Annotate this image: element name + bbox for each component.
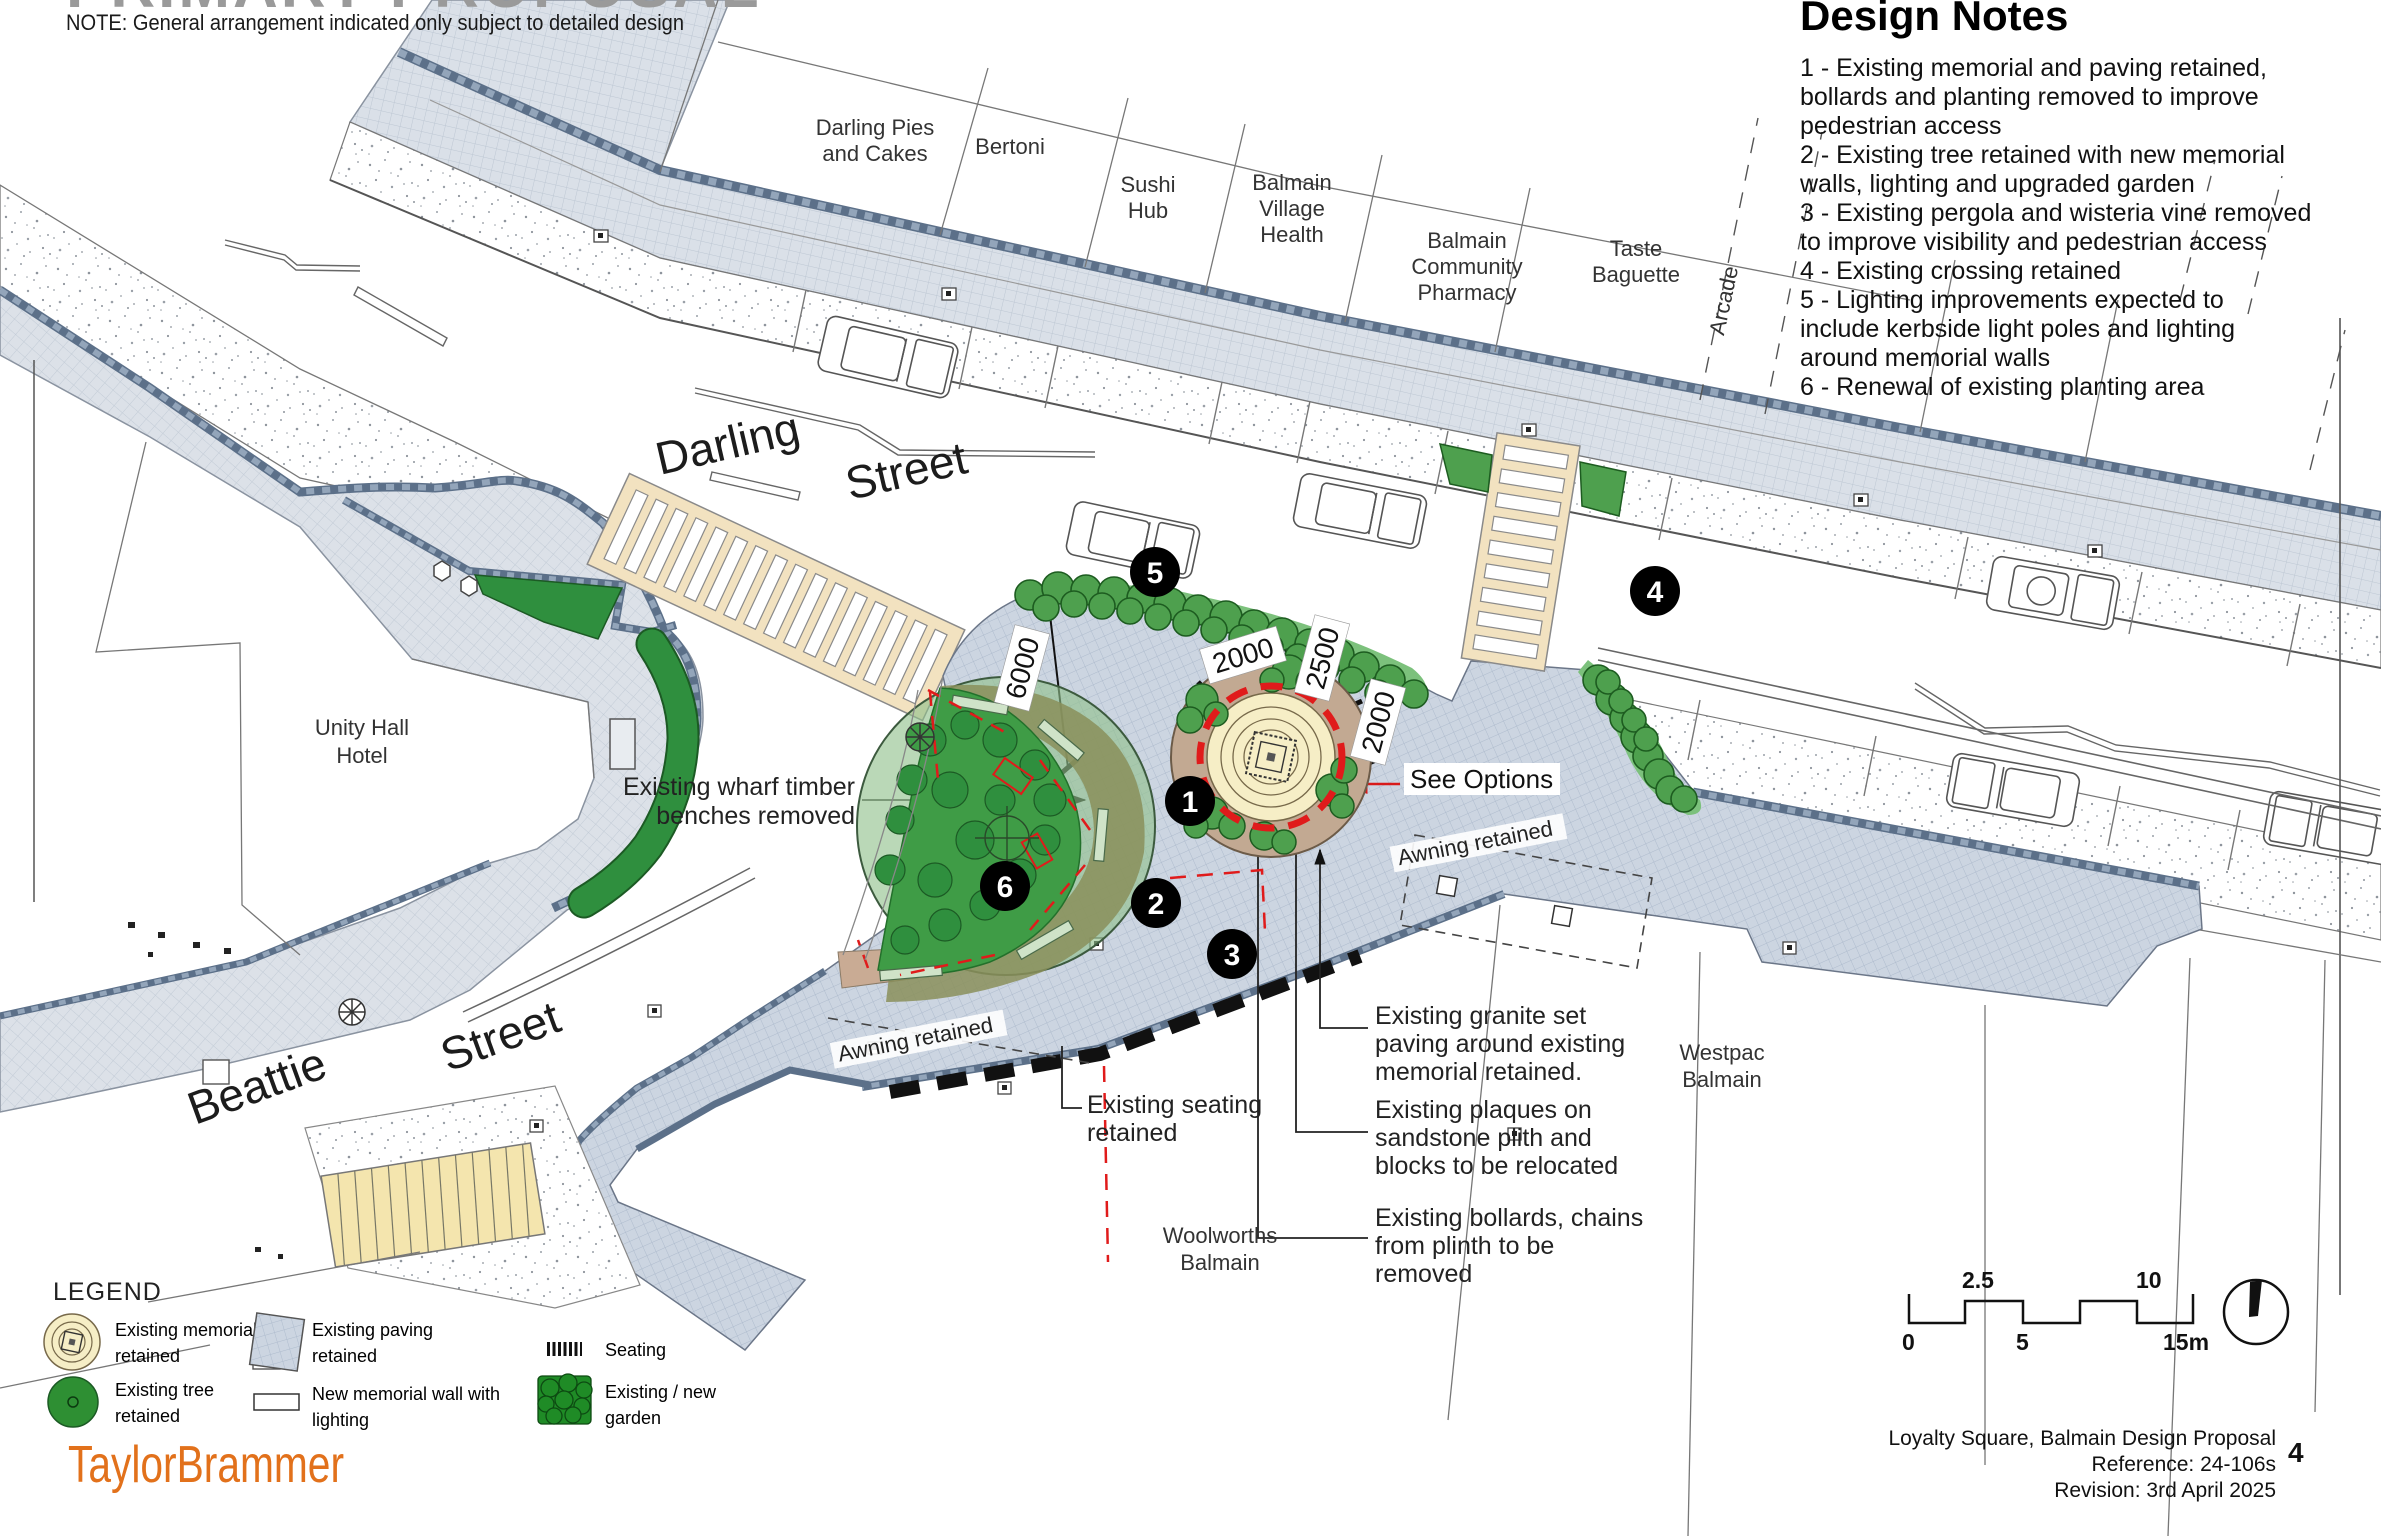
svg-text:LEGEND: LEGEND bbox=[53, 1278, 162, 1306]
svg-text:Sushi: Sushi bbox=[1120, 172, 1175, 197]
svg-text:Seating: Seating bbox=[605, 1340, 666, 1360]
svg-text:Existing paving: Existing paving bbox=[312, 1320, 433, 1340]
svg-text:walls, lighting and upgraded g: walls, lighting and upgraded garden bbox=[1799, 170, 2195, 198]
svg-text:5: 5 bbox=[1147, 557, 1164, 590]
svg-text:See Options: See Options bbox=[1410, 764, 1553, 794]
svg-text:Balmain: Balmain bbox=[1682, 1067, 1761, 1092]
svg-text:2: 2 bbox=[1148, 888, 1165, 921]
svg-text:0: 0 bbox=[1902, 1329, 1915, 1355]
svg-text:retained: retained bbox=[115, 1346, 180, 1366]
svg-text:4: 4 bbox=[1647, 576, 1664, 609]
svg-text:retained: retained bbox=[1087, 1119, 1177, 1147]
svg-text:4 - Existing crossing retained: 4 - Existing crossing retained bbox=[1800, 257, 2121, 285]
svg-text:6 - Renewal of existing planti: 6 - Renewal of existing planting area bbox=[1800, 373, 2205, 401]
svg-text:retained: retained bbox=[312, 1346, 377, 1366]
svg-text:5 - Lighting improvements expe: 5 - Lighting improvements expected to bbox=[1800, 286, 2224, 314]
svg-text:TaylorBrammer: TaylorBrammer bbox=[68, 1436, 344, 1494]
svg-text:include kerbside light poles a: include kerbside light poles and lightin… bbox=[1800, 315, 2235, 343]
svg-text:removed: removed bbox=[1375, 1260, 1472, 1288]
svg-text:Existing memorial: Existing memorial bbox=[115, 1320, 257, 1340]
svg-text:around memorial walls: around memorial walls bbox=[1800, 344, 2050, 372]
svg-text:4: 4 bbox=[2288, 1437, 2304, 1468]
svg-text:1 - Existing memorial and pavi: 1 - Existing memorial and paving retaine… bbox=[1800, 54, 2267, 82]
svg-text:Existing tree: Existing tree bbox=[115, 1380, 214, 1400]
svg-text:Village: Village bbox=[1259, 196, 1325, 221]
svg-text:Existing bollards, chains: Existing bollards, chains bbox=[1375, 1204, 1643, 1232]
svg-text:5: 5 bbox=[2016, 1329, 2029, 1355]
svg-text:Revision: 3rd April 2025: Revision: 3rd April 2025 bbox=[2054, 1479, 2276, 1502]
svg-text:Loyalty Square, Balmain Design: Loyalty Square, Balmain Design Proposal bbox=[1888, 1427, 2276, 1450]
svg-text:Taste: Taste bbox=[1610, 236, 1663, 261]
svg-text:garden: garden bbox=[605, 1408, 661, 1428]
svg-text:Balmain: Balmain bbox=[1180, 1250, 1259, 1275]
svg-text:Existing granite set: Existing granite set bbox=[1375, 1002, 1586, 1030]
svg-text:retained: retained bbox=[115, 1406, 180, 1426]
svg-text:3: 3 bbox=[1224, 939, 1241, 972]
svg-text:pedestrian access: pedestrian access bbox=[1800, 112, 2002, 140]
svg-text:1: 1 bbox=[1182, 786, 1199, 819]
svg-text:to improve visibility and pede: to improve visibility and pedestrian acc… bbox=[1800, 228, 2267, 256]
svg-text:Balmain: Balmain bbox=[1252, 170, 1331, 195]
svg-text:New memorial wall with: New memorial wall with bbox=[312, 1384, 500, 1404]
svg-text:2 - Existing tree retained wit: 2 - Existing tree retained with new memo… bbox=[1800, 141, 2285, 169]
svg-text:Hotel: Hotel bbox=[336, 743, 387, 768]
svg-text:paving around existing: paving around existing bbox=[1375, 1030, 1625, 1058]
svg-text:sandstone plith and: sandstone plith and bbox=[1375, 1124, 1592, 1152]
svg-text:6: 6 bbox=[997, 871, 1014, 904]
svg-text:bollards and planting removed: bollards and planting removed to improve bbox=[1800, 83, 2259, 111]
svg-text:Darling Pies: Darling Pies bbox=[816, 115, 935, 140]
svg-text:blocks to be relocated: blocks to be relocated bbox=[1375, 1152, 1618, 1180]
svg-text:Community: Community bbox=[1411, 254, 1522, 279]
svg-text:Existing seating: Existing seating bbox=[1087, 1091, 1262, 1119]
svg-text:lighting: lighting bbox=[312, 1410, 369, 1430]
svg-text:memorial retained.: memorial retained. bbox=[1375, 1058, 1582, 1086]
svg-text:3 - Existing pergola and wiste: 3 - Existing pergola and wisteria vine r… bbox=[1800, 199, 2311, 227]
svg-text:Existing / new: Existing / new bbox=[605, 1382, 717, 1402]
svg-text:Balmain: Balmain bbox=[1427, 228, 1506, 253]
svg-text:Bertoni: Bertoni bbox=[975, 134, 1045, 159]
svg-text:15m: 15m bbox=[2163, 1329, 2209, 1355]
svg-text:Design Notes: Design Notes bbox=[1800, 0, 2068, 39]
svg-text:Existing plaques on: Existing plaques on bbox=[1375, 1096, 1592, 1124]
svg-text:NOTE: General arrangement indi: NOTE: General arrangement indicated only… bbox=[66, 10, 684, 35]
svg-text:Hub: Hub bbox=[1128, 198, 1168, 223]
svg-text:Reference: 24-106s: Reference: 24-106s bbox=[2092, 1453, 2276, 1476]
svg-text:and Cakes: and Cakes bbox=[822, 141, 927, 166]
svg-text:Baguette: Baguette bbox=[1592, 262, 1680, 287]
svg-text:Unity Hall: Unity Hall bbox=[315, 715, 409, 740]
svg-text:2.5: 2.5 bbox=[1962, 1267, 1994, 1293]
svg-text:Westpac: Westpac bbox=[1679, 1040, 1764, 1065]
svg-text:benches removed: benches removed bbox=[656, 802, 855, 830]
svg-text:Pharmacy: Pharmacy bbox=[1417, 280, 1516, 305]
svg-text:Health: Health bbox=[1260, 222, 1324, 247]
svg-text:10: 10 bbox=[2136, 1267, 2162, 1293]
svg-text:Woolworths: Woolworths bbox=[1163, 1223, 1278, 1248]
svg-text:Existing wharf timber: Existing wharf timber bbox=[623, 773, 855, 801]
svg-text:from plinth to be: from plinth to be bbox=[1375, 1232, 1554, 1260]
